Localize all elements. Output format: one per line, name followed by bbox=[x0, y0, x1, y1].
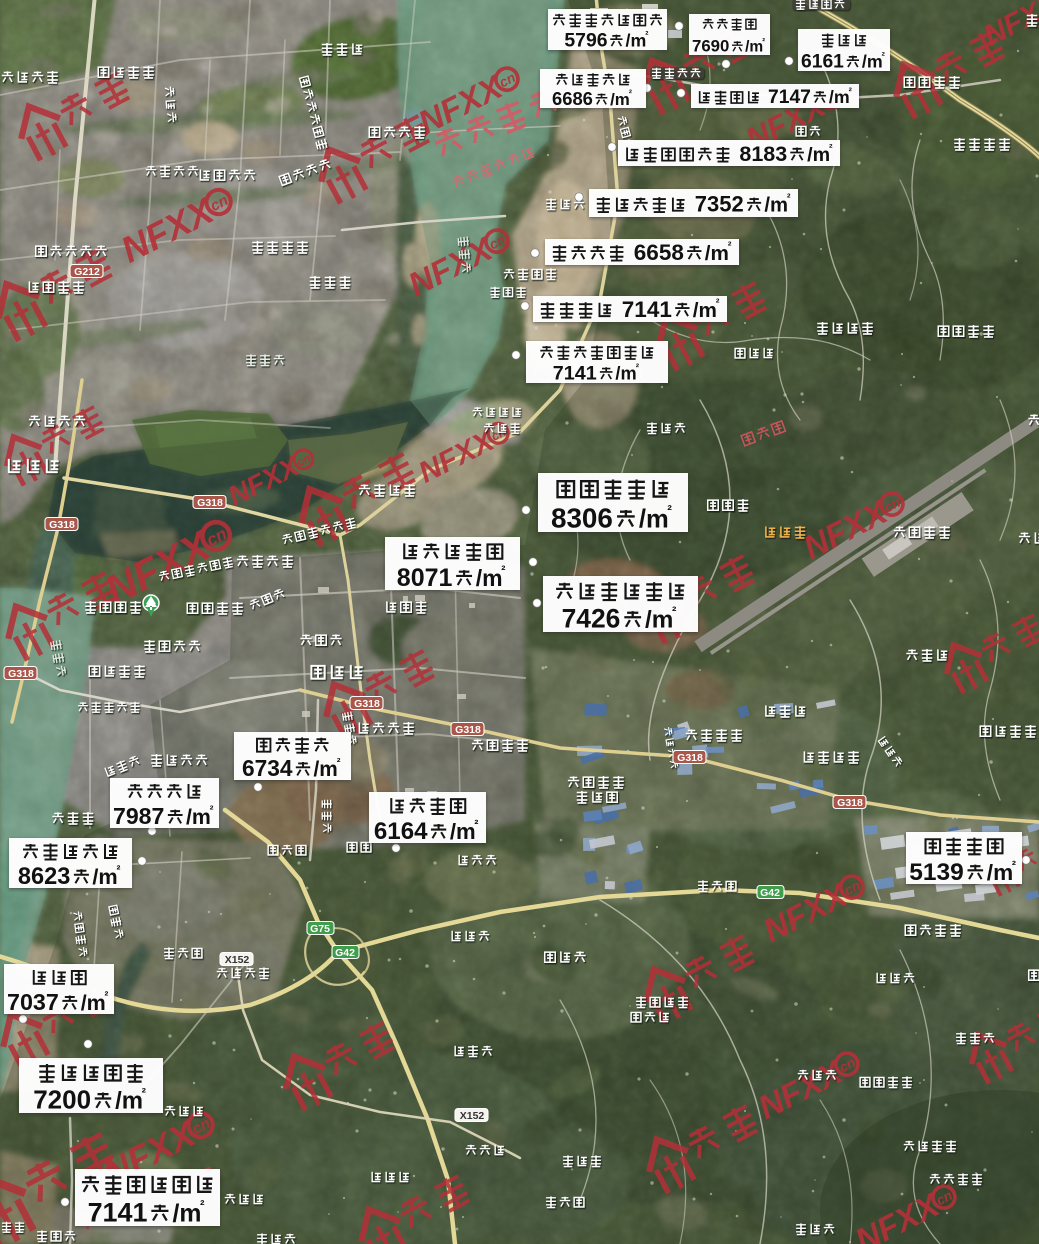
svg-text:/m: /m bbox=[92, 864, 117, 889]
svg-text:6658: 6658 bbox=[634, 240, 684, 265]
svg-text:/m: /m bbox=[745, 39, 763, 56]
svg-text:/m: /m bbox=[450, 819, 476, 844]
svg-text:7141: 7141 bbox=[88, 1197, 148, 1227]
svg-text:G318: G318 bbox=[354, 698, 380, 710]
svg-text:5139: 5139 bbox=[909, 859, 964, 886]
svg-text:/m: /m bbox=[615, 364, 636, 384]
svg-text:G318: G318 bbox=[455, 724, 481, 736]
svg-text:7426: 7426 bbox=[562, 604, 621, 634]
svg-text:6164: 6164 bbox=[374, 818, 428, 845]
svg-text:6161: 6161 bbox=[801, 52, 844, 73]
svg-text:7141: 7141 bbox=[553, 363, 597, 385]
svg-text:G212: G212 bbox=[74, 266, 100, 278]
svg-text:8071: 8071 bbox=[397, 564, 453, 592]
svg-text:²: ² bbox=[337, 757, 341, 769]
svg-text:²: ² bbox=[829, 142, 833, 154]
svg-text:²: ² bbox=[142, 1085, 147, 1100]
svg-text:²: ² bbox=[210, 804, 214, 817]
svg-text:/m: /m bbox=[693, 299, 717, 322]
svg-text:G318: G318 bbox=[49, 519, 75, 531]
svg-text:²: ² bbox=[105, 990, 109, 1003]
svg-text:G318: G318 bbox=[677, 752, 703, 764]
svg-text:/m: /m bbox=[314, 758, 338, 781]
svg-text:X152: X152 bbox=[225, 954, 250, 966]
svg-text:²: ² bbox=[629, 89, 632, 99]
svg-text:6734: 6734 bbox=[242, 755, 293, 781]
svg-text:G75: G75 bbox=[310, 923, 330, 935]
svg-text:5796: 5796 bbox=[564, 30, 607, 52]
svg-text:²: ² bbox=[672, 604, 677, 619]
svg-text:²: ² bbox=[501, 564, 505, 578]
svg-text:²: ² bbox=[1012, 858, 1016, 872]
svg-text:/m: /m bbox=[705, 242, 729, 265]
svg-text:7200: 7200 bbox=[33, 1085, 91, 1115]
svg-text:/m: /m bbox=[476, 565, 503, 591]
svg-text:7987: 7987 bbox=[113, 803, 164, 829]
svg-text:²: ² bbox=[728, 241, 732, 253]
svg-text:/m: /m bbox=[173, 1200, 202, 1227]
svg-text:G318: G318 bbox=[837, 797, 863, 809]
svg-text:/m: /m bbox=[115, 1088, 143, 1115]
svg-text:X152: X152 bbox=[460, 1110, 485, 1122]
svg-text:²: ² bbox=[474, 817, 478, 831]
svg-text:/m: /m bbox=[987, 860, 1013, 885]
svg-text:/m: /m bbox=[610, 90, 630, 109]
svg-text:/m: /m bbox=[645, 607, 673, 634]
svg-text:/m: /m bbox=[764, 194, 788, 216]
svg-text:²: ² bbox=[787, 193, 791, 205]
svg-text:G42: G42 bbox=[335, 947, 355, 959]
svg-text:/m: /m bbox=[81, 991, 106, 1015]
svg-text:/m: /m bbox=[862, 52, 883, 72]
svg-text:/m: /m bbox=[807, 144, 830, 166]
svg-text:7147: 7147 bbox=[768, 87, 811, 108]
svg-text:²: ² bbox=[117, 862, 121, 876]
svg-text:/m: /m bbox=[829, 87, 850, 107]
svg-text:²: ² bbox=[762, 36, 765, 46]
svg-text:7141: 7141 bbox=[622, 297, 672, 322]
svg-text:/m: /m bbox=[186, 805, 211, 829]
svg-text:²: ² bbox=[200, 1197, 205, 1212]
svg-text:6686: 6686 bbox=[552, 88, 593, 109]
svg-text:G42: G42 bbox=[760, 887, 780, 899]
svg-text:G318: G318 bbox=[8, 668, 34, 680]
svg-text:8623: 8623 bbox=[18, 864, 71, 890]
svg-text:/m: /m bbox=[626, 31, 647, 51]
svg-text:7037: 7037 bbox=[7, 989, 59, 1015]
svg-text:7690: 7690 bbox=[692, 37, 729, 56]
svg-text:8183: 8183 bbox=[739, 142, 787, 166]
svg-text:7352: 7352 bbox=[695, 191, 744, 216]
svg-text:G318: G318 bbox=[197, 497, 223, 509]
svg-text:8306: 8306 bbox=[551, 502, 613, 533]
svg-text:/m: /m bbox=[639, 505, 669, 533]
svg-text:²: ² bbox=[667, 502, 672, 518]
svg-text:²: ² bbox=[716, 298, 720, 310]
